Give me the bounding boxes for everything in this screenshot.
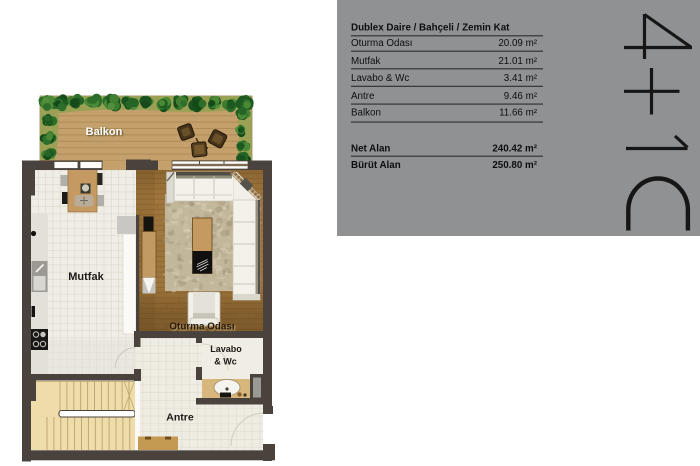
svg-text:250.80 m²: 250.80 m² [492,160,537,171]
svg-text:Bürüt Alan: Bürüt Alan [351,160,401,171]
svg-text:20.09 m²: 20.09 m² [498,38,537,49]
svg-text:Lavabo: Lavabo [210,344,242,354]
svg-text:Oturma Odası: Oturma Odası [169,322,235,333]
svg-text:Lavabo & Wc: Lavabo & Wc [351,73,409,84]
svg-text:Net Alan: Net Alan [351,143,390,154]
svg-text:21.01 m²: 21.01 m² [498,56,537,67]
svg-text:3.41 m²: 3.41 m² [504,73,538,84]
svg-text:Balkon: Balkon [86,126,123,138]
svg-text:9.46 m²: 9.46 m² [504,91,538,102]
svg-text:Mutfak: Mutfak [351,56,381,67]
svg-text:240.42 m²: 240.42 m² [492,143,537,154]
svg-text:11.66 m²: 11.66 m² [499,108,538,119]
svg-text:& Wc: & Wc [214,357,237,367]
svg-text:Oturma Odası: Oturma Odası [351,38,413,49]
svg-text:Antre: Antre [166,412,194,424]
svg-text:Balkon: Balkon [351,108,381,119]
svg-text:Mutfak: Mutfak [68,271,104,283]
svg-text:Antre: Antre [351,91,375,102]
svg-text:Dublex Daire / Bahçeli / Zemin: Dublex Daire / Bahçeli / Zemin Kat [351,23,510,34]
